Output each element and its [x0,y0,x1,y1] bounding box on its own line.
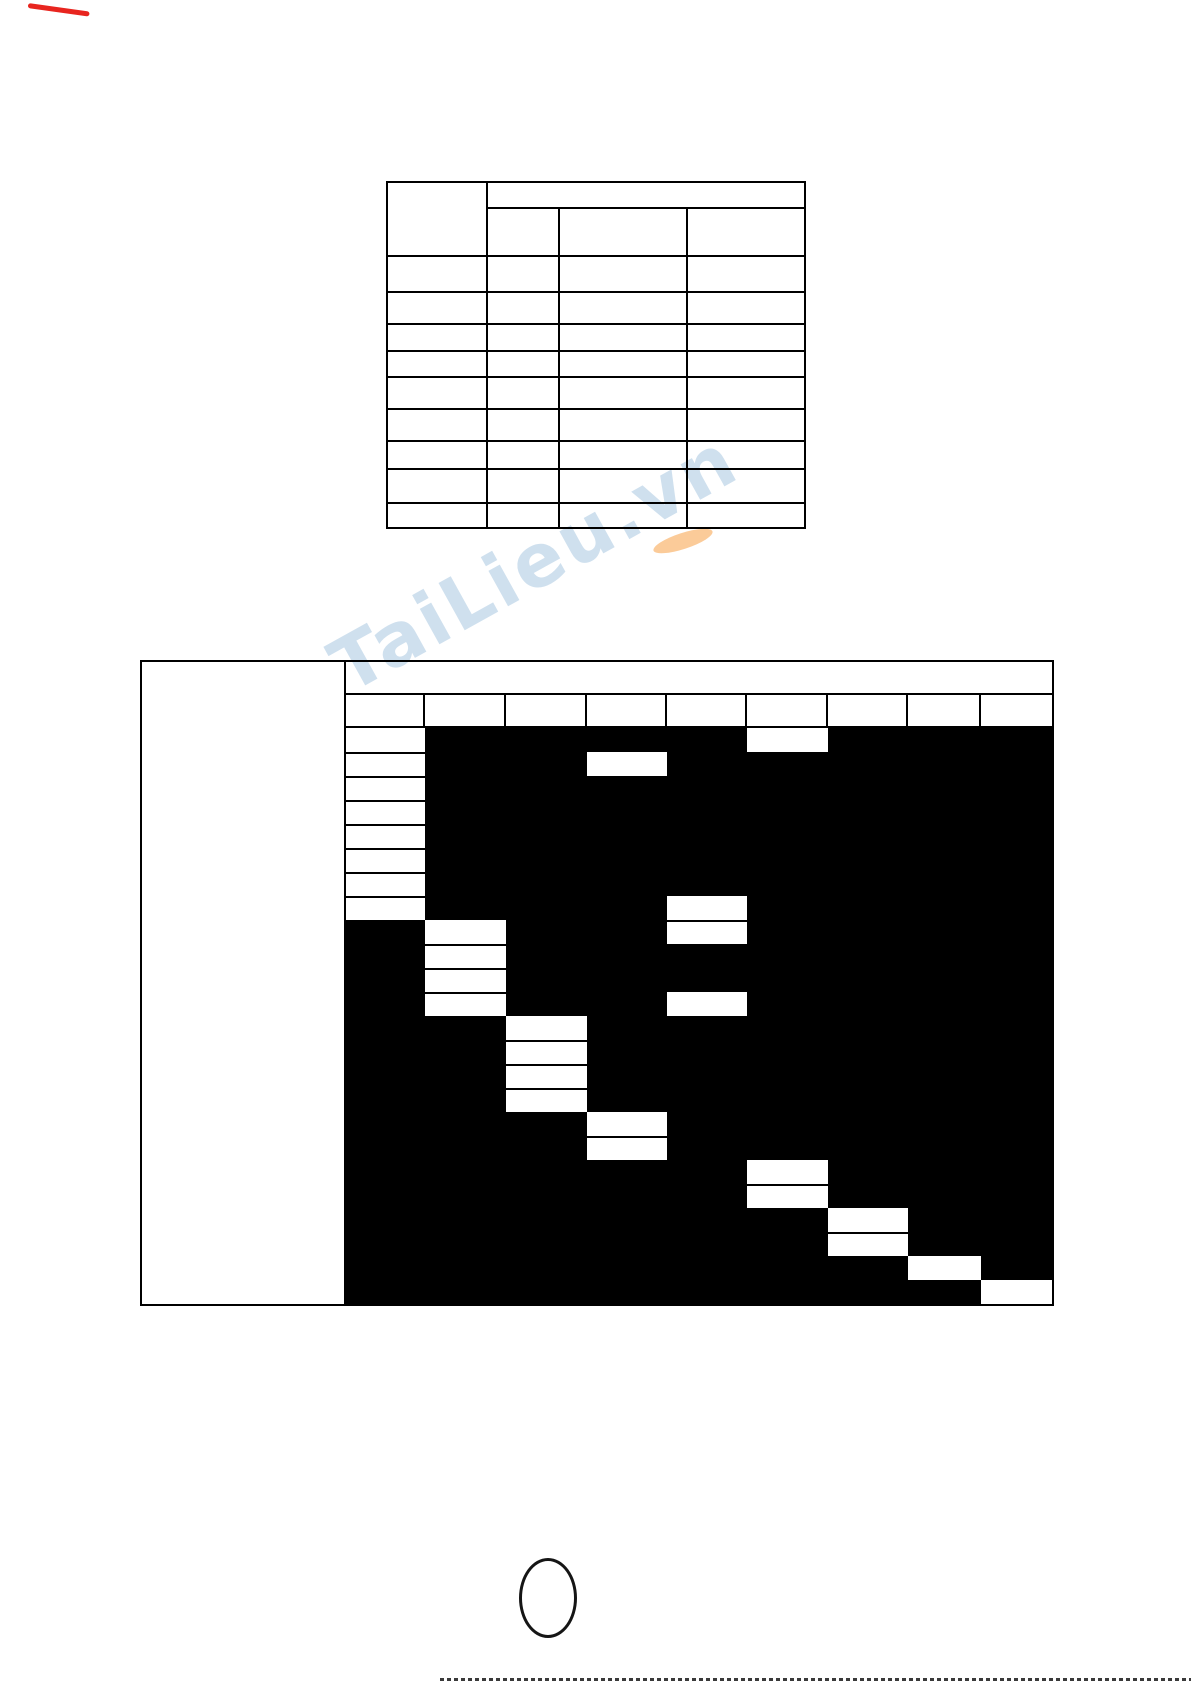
top-table-body-cell [560,504,688,527]
gantt-bar [425,920,506,1016]
gantt-bar-segment [667,920,747,944]
gantt-period-header-cell [346,695,425,728]
top-table-body-cell [688,410,804,442]
gantt-bar [981,1280,1052,1304]
gantt-bar [667,896,747,944]
gantt-bar [747,1160,828,1208]
gantt-bar-segment [346,896,425,920]
top-table-body-cell [688,352,804,378]
top-table-subheader-cell [488,209,560,257]
top-table-body-cell [488,470,560,504]
gantt-table [140,660,1054,1306]
top-table-body-cell [560,293,688,325]
gantt-bar [587,752,667,776]
gantt-bar [747,728,828,752]
gantt-bar-segment [828,1232,908,1256]
top-table-body-cell [560,442,688,470]
top-table-group-header-cell [488,183,804,209]
top-table-body-cell [560,352,688,378]
top-table [386,181,806,529]
gantt-period-header-cell [425,695,506,728]
gantt-period-header-cell [587,695,667,728]
gantt-bar-segment [667,992,747,1016]
gantt-bar-segment [346,848,425,872]
top-table-body-cell [560,410,688,442]
scanned-document-page: { "page": { "background": "#ffffff", "in… [0,0,1191,1685]
gantt-bar-segment [587,1112,667,1136]
gantt-bar-segment [346,728,425,752]
top-table-body-cell [688,257,804,293]
top-table-body-cell [560,378,688,410]
gantt-bar-segment [425,944,506,968]
gantt-bar-segment [908,1256,981,1280]
gantt-bar-segment [506,1040,587,1064]
top-table-body-cell [488,504,560,527]
bottom-dashed-separator-line [440,1678,1191,1681]
gantt-bar-segment [981,1280,1052,1304]
top-table-body-cell [488,257,560,293]
top-table-body-cell [488,352,560,378]
gantt-period-header-cell [908,695,981,728]
top-table-body-cell [388,442,488,470]
gantt-bar [908,1256,981,1280]
top-table-body-cell [388,352,488,378]
gantt-period-header-cell [828,695,908,728]
top-table-body-cell [388,470,488,504]
gantt-bar-segment [587,752,667,776]
top-table-body-cell [388,504,488,527]
top-table-body-cell [388,293,488,325]
gantt-period-header-cell [981,695,1052,728]
gantt-bar-segment [346,800,425,824]
gantt-bar-segment [346,824,425,848]
top-table-body-cell [688,470,804,504]
top-table-body-cell [688,325,804,352]
top-table-subheader-cell [688,209,804,257]
gantt-bar [587,1112,667,1160]
gantt-bar-segment [747,1184,828,1208]
top-table-body-cell [488,442,560,470]
gantt-bar-segment [587,1136,667,1160]
top-table-body-cell [688,442,804,470]
top-table-body-cell [388,410,488,442]
gantt-bar [828,1208,908,1256]
gantt-period-header-cell [667,695,747,728]
gantt-bar-segment [747,1160,828,1184]
top-table-body-cell [488,293,560,325]
gantt-bar-segment [425,992,506,1016]
top-table-body-cell [688,293,804,325]
top-table-body-cell [560,470,688,504]
gantt-body-black-area [346,728,1052,1304]
gantt-bar [506,1016,587,1112]
top-table-corner-header-cell [388,183,488,257]
gantt-bar-segment [506,1088,587,1112]
red-pen-mark [28,3,90,17]
gantt-bar [667,992,747,1016]
gantt-bar-segment [425,920,506,944]
gantt-bar-segment [346,752,425,776]
gantt-timeline-group-header [346,662,1052,695]
top-table-body-cell [488,378,560,410]
gantt-bar-segment [747,728,828,752]
gantt-bar-segment [506,1016,587,1040]
gantt-period-header-cell [506,695,587,728]
gantt-task-label-column [142,662,346,1304]
top-table-body-cell [388,257,488,293]
top-table-body-cell [488,410,560,442]
gantt-bar [346,728,425,920]
gantt-bar-segment [828,1208,908,1232]
top-table-body-cell [388,325,488,352]
top-table-subheader-cell [560,209,688,257]
gantt-bar-segment [346,776,425,800]
gantt-bar-segment [667,896,747,920]
page-number-circle [519,1558,577,1638]
top-table-body-cell [388,378,488,410]
gantt-bar-segment [346,872,425,896]
top-table-body-cell [488,325,560,352]
top-table-body-cell [688,378,804,410]
gantt-bar-segment [506,1064,587,1088]
gantt-bar-segment [425,968,506,992]
gantt-period-header-cell [747,695,828,728]
top-table-body-cell [560,257,688,293]
top-table-body-cell [560,325,688,352]
top-table-body-cell [688,504,804,527]
